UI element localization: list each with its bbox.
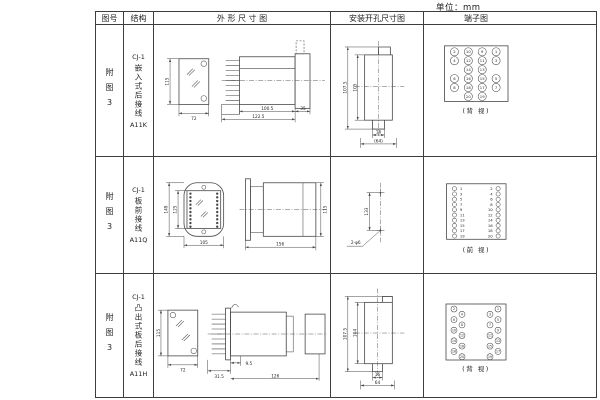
spec-table: 图号 结构 外 形 尺 寸 图 安装开孔尺寸图 端子图 附图3 CJ-1 嵌入式… — [95, 11, 597, 398]
dim-total-width: (64) — [374, 138, 383, 144]
terminal-number: 18 — [452, 350, 456, 354]
terminal-number: 14 — [488, 219, 493, 223]
terminal-number: 5 — [460, 198, 463, 202]
terminal-diagram-a11q: 1234567891011121314151617181920 (前 视) — [424, 157, 596, 273]
dim-inner-height: 105 — [353, 83, 359, 91]
mounting-drawing-a11k: 107.5 105 16 (64) — [331, 25, 423, 156]
terminal-circle — [496, 202, 500, 206]
terminal-number: 9 — [497, 328, 499, 332]
seal-mark — [192, 81, 200, 88]
terminal-circle — [496, 218, 500, 222]
terminal-number: 16 — [488, 224, 493, 228]
terminal-circle — [496, 229, 500, 233]
seal-mark — [176, 320, 184, 327]
header-structure-label: 结构 — [131, 13, 147, 24]
terminal-number: 11 — [488, 334, 492, 338]
terminal-number: 14 — [466, 68, 471, 72]
cell-structure-row1: CJ-1 嵌入式后接线 A11K — [124, 25, 154, 157]
cell-outline-row2: 149 125 105 156 — [154, 157, 331, 274]
outline-drawing-a11k: 115 72 100.5 122.5 — [154, 25, 330, 156]
terminal-number: 9 — [460, 208, 463, 212]
terminal-number: 18 — [488, 229, 493, 233]
mounting-drawing-a11q: 133 2-φ6 — [331, 157, 423, 273]
dim-outer-height: 149 — [164, 205, 170, 213]
terminal-number: 15 — [460, 224, 465, 228]
mount-type-row2: 板前接线 — [133, 197, 144, 233]
terminal-number: 14 — [452, 339, 456, 343]
fig-no-row1: 附图3 — [104, 68, 115, 114]
header-terminal-label: 端子图 — [464, 13, 488, 24]
terminal-number: 4 — [461, 313, 463, 317]
cell-fig-no-row1: 附图3 — [96, 25, 124, 157]
terminal-circle — [452, 192, 456, 196]
terminal-caption: (背 视) — [462, 364, 490, 373]
terminal-circle — [496, 234, 500, 238]
terminal-number: 12 — [466, 59, 471, 63]
fig-no-row3: 附图3 — [104, 313, 115, 359]
terminal-number: 7 — [495, 86, 498, 90]
terminal-grid: 1234567891011121314151617181920 — [452, 187, 500, 239]
terminal-number: 1 — [495, 50, 498, 54]
header-mounting-label: 安装开孔尺寸图 — [349, 13, 405, 24]
dim-inner-height: 104 — [353, 329, 359, 337]
terminal-number: 4 — [453, 59, 456, 63]
model-row3: CJ-1 — [132, 293, 145, 301]
terminal-number: 2 — [490, 187, 493, 191]
seal-mark — [201, 212, 208, 218]
terminal-number: 2 — [453, 50, 456, 54]
cell-fig-no-row3: 附图3 — [96, 274, 124, 397]
spec-sheet-page: 单位：mm 图号 结构 外 形 尺 寸 图 安装开孔尺寸图 端子图 附图3 CJ… — [0, 0, 600, 400]
terminal-number: 3 — [489, 313, 491, 317]
cell-structure-row3: CJ-1 凸出式板后接线 A11H — [124, 274, 154, 397]
mounting-drawing-a11h: 107.5 104 16 64 — [331, 274, 423, 397]
terminal-number: 13 — [480, 68, 485, 72]
terminal-circle — [496, 213, 500, 217]
terminal-circle — [496, 208, 500, 212]
dim-front-height: 115 — [156, 329, 162, 337]
code-row1: A11K — [130, 121, 147, 129]
terminal-number: 12 — [488, 213, 493, 217]
cell-outline-row1: 115 72 100.5 122.5 — [154, 25, 331, 157]
terminal-diagram-a11h: 2468101214161820135791113151719 (背 视) — [424, 274, 596, 397]
header-structure: 结构 — [124, 12, 154, 25]
fig-no-row2: 附图3 — [104, 192, 115, 238]
outline-drawing-a11h: 115 72 9.5 31.5 — [154, 274, 330, 397]
terminal-number: 15 — [488, 344, 492, 348]
dim-outer-height: 107.5 — [342, 328, 348, 340]
header-terminal: 端子图 — [424, 12, 596, 25]
terminal-number: 10 — [452, 328, 456, 332]
terminal-number: 10 — [466, 50, 471, 54]
dim-front-width: 105 — [200, 240, 208, 246]
terminal-circle — [452, 218, 456, 222]
cell-mounting-row3: 107.5 104 16 64 — [331, 274, 424, 397]
terminal-circle — [496, 192, 500, 196]
terminal-number: 10 — [488, 208, 493, 212]
terminal-number: 15 — [480, 77, 485, 81]
terminal-circle — [496, 187, 500, 191]
cell-mounting-row2: 133 2-φ6 — [331, 157, 424, 274]
seal-mark — [182, 334, 190, 341]
dim-inner-height: 125 — [173, 205, 179, 213]
terminal-number: 3 — [460, 192, 463, 196]
code-row2: A11Q — [130, 236, 148, 244]
cell-terminal-row1: 2109141211314136161558181772019 (背 视) — [424, 25, 596, 157]
terminal-circle — [452, 187, 456, 191]
header-mounting: 安装开孔尺寸图 — [331, 12, 424, 25]
terminal-number: 2 — [453, 307, 455, 311]
terminal-number: 20 — [460, 355, 464, 359]
dim-front-width: 72 — [191, 116, 197, 122]
terminal-number: 16 — [466, 77, 471, 81]
terminal-circle — [496, 197, 500, 201]
terminal-number: 17 — [460, 229, 465, 233]
terminal-circle — [452, 223, 456, 227]
terminal-number: 19 — [460, 234, 465, 238]
dim-outer-height: 107.5 — [342, 81, 348, 93]
terminal-caption: (背 视) — [463, 106, 490, 115]
terminal-number: 16 — [460, 344, 464, 348]
terminal-circle — [452, 202, 456, 206]
model-row2: CJ-1 — [132, 186, 145, 194]
dim-fin-length: 31.5 — [214, 374, 224, 380]
dim-body-length: 156 — [276, 242, 284, 248]
terminal-caption: (前 视) — [463, 245, 490, 254]
cell-terminal-row2: 1234567891011121314151617181920 (前 视) — [424, 157, 596, 274]
terminal-number: 5 — [495, 77, 498, 81]
terminal-number: 9 — [481, 50, 484, 54]
dim-slot-width: 16 — [375, 372, 381, 378]
cell-terminal-row3: 2468101214161820135791113151719 (背 视) — [424, 274, 596, 397]
terminal-number: 1 — [460, 187, 463, 191]
terminal-circle — [452, 197, 456, 201]
dim-total-length: 122.5 — [252, 114, 264, 120]
terminal-number: 8 — [461, 323, 463, 327]
terminal-diagram-a11k: 2109141211314136161558181772019 (背 视) — [424, 25, 596, 156]
header-outline-label: 外 形 尺 寸 图 — [217, 13, 267, 24]
mount-type-row1: 嵌入式后接线 — [133, 64, 144, 118]
seal-mark — [187, 69, 195, 76]
terminal-number: 6 — [490, 198, 493, 202]
dim-stud-length: 9.5 — [245, 361, 252, 367]
terminal-circle — [452, 234, 456, 238]
hole-spec-label: 2-φ6 — [351, 240, 361, 246]
dim-side-height: 115 — [322, 205, 328, 213]
seal-mark — [196, 200, 203, 206]
terminal-number: 11 — [480, 59, 485, 63]
mount-type-row3: 凸出式板后接线 — [133, 304, 144, 367]
terminal-number: 20 — [466, 95, 471, 99]
dim-front-height: 115 — [165, 77, 171, 85]
terminal-number: 19 — [488, 355, 492, 359]
terminal-number: 3 — [495, 59, 498, 63]
terminal-number: 18 — [466, 86, 471, 90]
cell-mounting-row1: 107.5 105 16 (64) — [331, 25, 424, 157]
terminal-grid: 2109141211314136161558181772019 — [450, 48, 500, 101]
code-row3: A11H — [130, 370, 148, 378]
terminal-circle — [496, 223, 500, 227]
header-fig-no-label: 图号 — [102, 13, 118, 24]
dashed-stud — [296, 41, 304, 54]
dim-total-width: 64 — [375, 380, 381, 386]
cell-structure-row2: CJ-1 板前接线 A11Q — [124, 157, 154, 274]
terminal-number: 1 — [497, 307, 499, 311]
dim-body-length: 126 — [271, 373, 279, 379]
terminal-number: 4 — [490, 192, 493, 196]
wire-hook — [232, 304, 239, 308]
terminal-number: 5 — [497, 318, 499, 322]
outline-drawing-a11q: 149 125 105 156 — [154, 157, 330, 273]
terminal-number: 7 — [460, 203, 463, 207]
terminal-number: 17 — [480, 86, 485, 90]
terminal-number: 6 — [453, 318, 455, 322]
terminal-number: 12 — [460, 334, 464, 338]
dim-front-width: 72 — [180, 367, 186, 373]
terminal-number: 13 — [496, 339, 500, 343]
terminal-grid: 2468101214161820135791113151719 — [451, 306, 501, 360]
dim-body-length: 100.5 — [261, 106, 273, 112]
terminal-circle — [452, 208, 456, 212]
header-outline: 外 形 尺 寸 图 — [154, 12, 331, 25]
terminal-number: 8 — [490, 203, 493, 207]
cell-fig-no-row2: 附图3 — [96, 157, 124, 274]
terminal-circle — [452, 213, 456, 217]
header-fig-no: 图号 — [96, 12, 124, 25]
terminal-circle — [452, 229, 456, 233]
dim-flange-width: 35 — [300, 106, 306, 112]
terminal-number: 17 — [496, 350, 500, 354]
dim-hole-distance: 133 — [364, 207, 370, 215]
terminal-number: 7 — [489, 323, 491, 327]
terminal-number: 20 — [488, 234, 493, 238]
model-row1: CJ-1 — [132, 53, 145, 61]
terminal-number: 8 — [453, 86, 456, 90]
terminal-number: 13 — [460, 219, 465, 223]
cell-outline-row3: 115 72 9.5 31.5 — [154, 274, 331, 397]
terminal-number: 19 — [480, 95, 485, 99]
terminal-number: 6 — [453, 77, 456, 81]
dim-slot-width: 16 — [376, 130, 382, 136]
terminal-number: 11 — [460, 213, 465, 217]
